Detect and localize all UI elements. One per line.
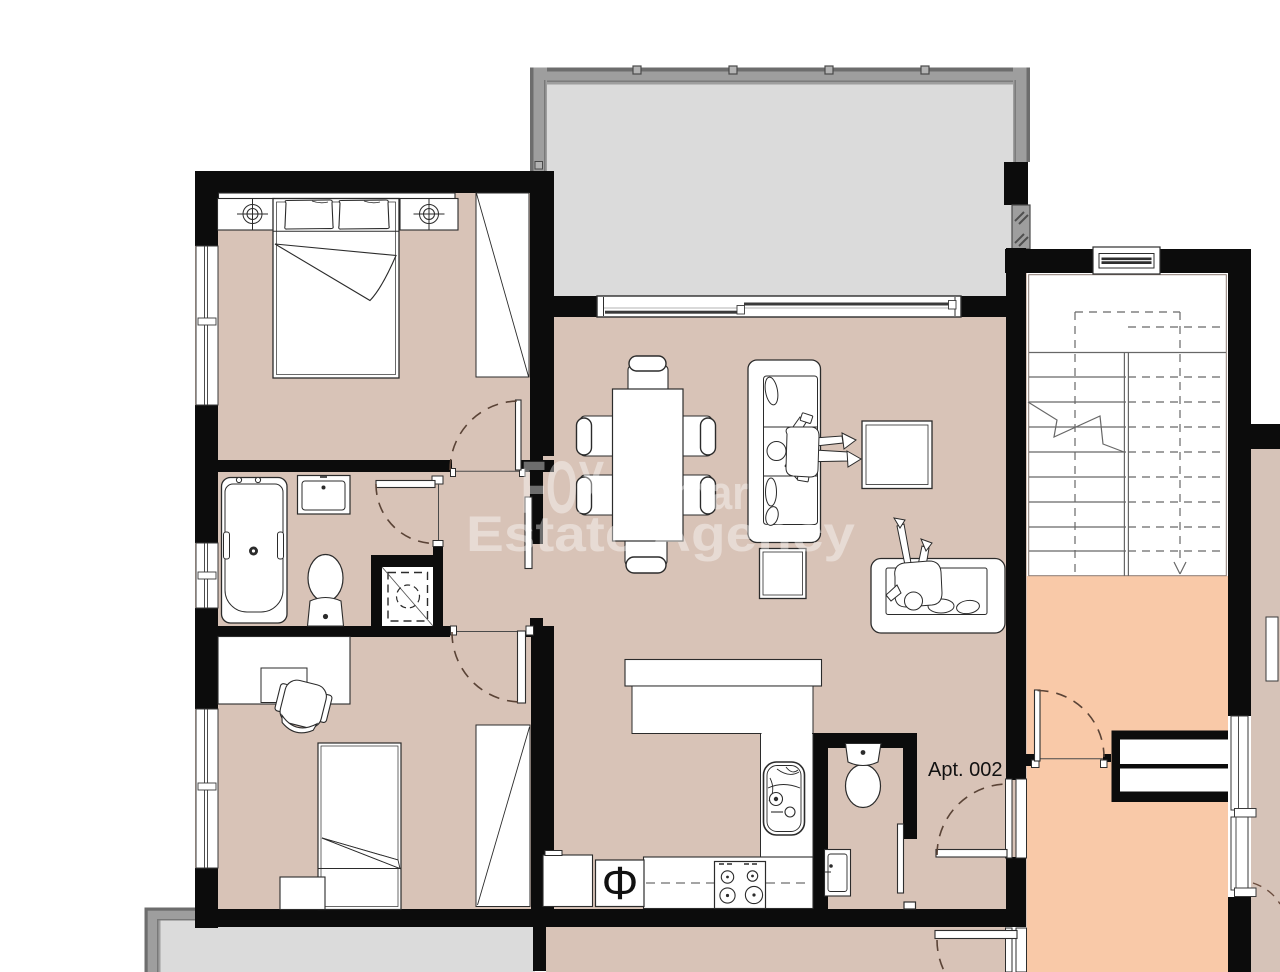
svg-text:Φ: Φ (602, 857, 639, 909)
svg-text:Estate Agency: Estate Agency (466, 506, 855, 562)
svg-text:Apt. 002: Apt. 002 (928, 759, 1003, 781)
